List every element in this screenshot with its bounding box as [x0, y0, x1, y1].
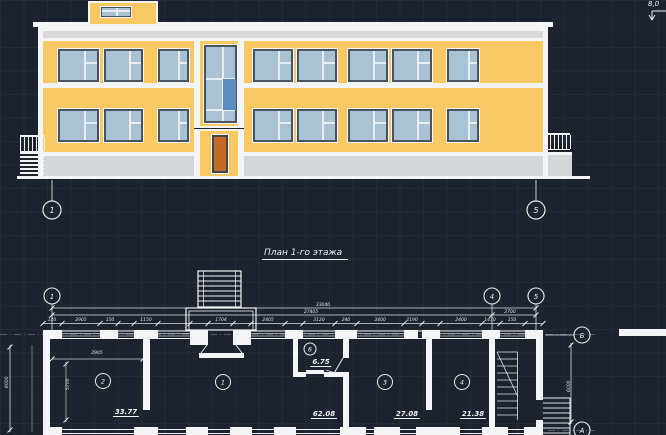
cad-viewport[interactable]: 15145БА21634 План 1-го этажа 8,0 33040 2… — [0, 0, 666, 435]
facade-window — [157, 108, 190, 143]
wall-pier — [422, 330, 440, 339]
room-area-label: 62.08 — [311, 410, 337, 419]
facade-window — [252, 48, 294, 83]
room-area-label: 6.75 — [310, 358, 331, 367]
axis-bubble-label: 4 — [490, 293, 494, 301]
wall-pier — [436, 427, 460, 435]
dim-chain-label: 150 — [508, 318, 517, 323]
room-number: 2 — [101, 378, 105, 386]
wall-pier — [340, 427, 366, 435]
facade-window — [347, 48, 389, 83]
facade-window — [296, 108, 338, 143]
wall-pier — [482, 427, 508, 435]
dim-chain-label: 3120 — [313, 318, 324, 323]
facade-window — [57, 108, 100, 143]
axis-bubble-label: 5 — [533, 206, 538, 215]
wall-int — [426, 339, 432, 410]
dim-chain-label: 2905 — [75, 318, 86, 323]
wall-pier — [404, 330, 418, 339]
wall-pier — [186, 427, 208, 435]
adjacent-line — [619, 329, 666, 336]
dim-chain-label: 2400 — [455, 318, 466, 323]
wall-pier — [525, 330, 543, 339]
wall-pier — [230, 427, 252, 435]
dim-chain-label: 1470 — [484, 318, 495, 323]
facade-window — [57, 48, 100, 83]
wall-pier — [274, 427, 296, 435]
dim-chain-label: 3400 — [374, 318, 385, 323]
axis-bubble-label: 1 — [49, 206, 54, 215]
dim-chain-label: 120 — [48, 318, 57, 323]
room-area-label: 27.08 — [394, 410, 420, 419]
facade-window — [252, 108, 294, 143]
dim-depth-right: 6000 — [567, 381, 572, 392]
dim-chain-label: 2190 — [406, 318, 417, 323]
wall-pier — [335, 330, 357, 339]
wall-pier — [134, 330, 158, 339]
facade-window — [296, 48, 338, 83]
closet-door-leaf — [306, 370, 324, 374]
facade-window — [103, 48, 144, 83]
entrance-jamb — [233, 330, 251, 345]
wall-pier — [43, 330, 62, 339]
facade-window — [347, 108, 389, 143]
dim-depth-left: 6000 — [5, 377, 10, 388]
plan-title: План 1-го этажа — [262, 248, 348, 260]
wall-pier — [285, 330, 303, 339]
facade-window — [391, 48, 433, 83]
wall-pier — [374, 427, 400, 435]
room-number: 3 — [383, 379, 387, 387]
wall-pier — [524, 427, 543, 435]
axis-bubble-label: А — [579, 427, 585, 435]
axis-bubble-label: Б — [580, 332, 585, 340]
dim-axis-4-5: 2700 — [504, 310, 515, 315]
facade-window — [446, 108, 480, 143]
dim-chain-label: 2405 — [262, 318, 273, 323]
axis-bubble-label: 5 — [534, 293, 539, 301]
wall-closet-bottom — [293, 372, 306, 377]
wall-pier — [482, 330, 500, 339]
wall-int — [343, 339, 349, 358]
wall-closet — [293, 339, 298, 372]
entrance-jamb — [190, 330, 208, 345]
wall-pier — [134, 427, 158, 435]
door-swing — [236, 345, 242, 353]
room-number: 1 — [221, 379, 225, 387]
wall-int — [143, 339, 150, 410]
dim-room2-width: 2905 — [91, 351, 102, 356]
elevation-mark-label: 8,0 — [648, 0, 659, 8]
facade-window — [446, 48, 480, 83]
wall-pier — [43, 427, 62, 435]
room-area-label: 21.38 — [460, 410, 486, 419]
door-swing — [201, 345, 207, 353]
dim-overall-top: 33040 — [316, 303, 330, 308]
dim-chain-label: 240 — [342, 318, 351, 323]
dim-overall-mid: 27405 — [304, 310, 318, 315]
facade-window — [391, 108, 433, 143]
facade-window — [157, 48, 190, 83]
room-number: 4 — [460, 379, 464, 387]
room-area-label: 33.77 — [113, 408, 139, 417]
wall-pier — [100, 330, 118, 339]
dim-chain-label: 150 — [106, 318, 115, 323]
axis-bubble-label: 1 — [50, 293, 54, 301]
facade-window — [103, 108, 144, 143]
wall-right — [536, 339, 543, 400]
wall-int — [343, 376, 349, 428]
dim-chain-label: 1704 — [215, 318, 226, 323]
wall-left — [43, 339, 50, 428]
room-number: 6 — [308, 346, 312, 354]
dim-room2-depth: 5700 — [66, 379, 71, 390]
entrance-threshold — [199, 353, 244, 358]
dim-chain-label: 1150 — [140, 318, 151, 323]
wall-stair — [489, 339, 495, 428]
